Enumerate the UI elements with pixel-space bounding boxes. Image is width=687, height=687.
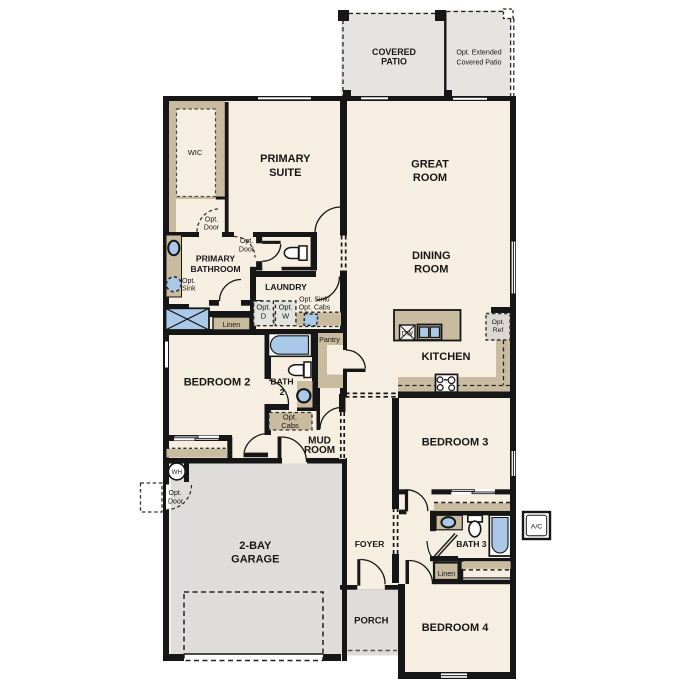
- svg-text:BATHROOM: BATHROOM: [191, 264, 241, 274]
- svg-text:KITCHEN: KITCHEN: [422, 351, 471, 363]
- svg-text:LAUNDRY: LAUNDRY: [265, 282, 307, 292]
- svg-text:BATH 3: BATH 3: [456, 539, 487, 549]
- svg-text:WIC: WIC: [188, 148, 203, 157]
- svg-text:FOYER: FOYER: [355, 539, 385, 549]
- svg-text:BEDROOM 4: BEDROOM 4: [422, 622, 490, 634]
- svg-text:Opt.: Opt.: [169, 490, 182, 497]
- svg-text:Pantry: Pantry: [319, 335, 340, 344]
- svg-text:Covered Patio: Covered Patio: [457, 59, 502, 67]
- svg-text:Door: Door: [168, 499, 184, 506]
- svg-text:2-BAY: 2-BAY: [239, 540, 272, 552]
- svg-text:Ref: Ref: [493, 327, 504, 334]
- svg-text:GARAGE: GARAGE: [231, 554, 279, 566]
- svg-text:Sink: Sink: [182, 286, 196, 293]
- svg-text:Opt. Sink/: Opt. Sink/: [299, 297, 330, 304]
- svg-text:W: W: [282, 312, 290, 321]
- svg-text:Opt.: Opt.: [182, 278, 195, 285]
- svg-text:BATH: BATH: [270, 377, 293, 387]
- svg-text:Linen: Linen: [438, 569, 456, 578]
- svg-text:Opt. Cabs: Opt. Cabs: [299, 305, 331, 312]
- svg-text:PRIMARY: PRIMARY: [196, 254, 236, 264]
- svg-text:DINING: DINING: [412, 250, 451, 262]
- svg-text:Cabs: Cabs: [281, 421, 299, 430]
- svg-text:COVERED: COVERED: [372, 47, 416, 57]
- svg-text:Opt.: Opt.: [492, 319, 505, 326]
- svg-text:2: 2: [280, 387, 285, 397]
- svg-text:A/C: A/C: [531, 524, 542, 531]
- svg-text:Opt.: Opt.: [279, 303, 293, 312]
- svg-text:PRIMARY: PRIMARY: [260, 153, 311, 165]
- svg-text:Opt.: Opt.: [205, 217, 218, 224]
- svg-text:BEDROOM 3: BEDROOM 3: [422, 437, 489, 449]
- svg-text:DW: DW: [402, 331, 414, 338]
- svg-text:ROOM: ROOM: [413, 172, 447, 184]
- svg-text:D: D: [261, 312, 267, 321]
- svg-text:Linen: Linen: [223, 320, 241, 329]
- svg-text:Door: Door: [239, 247, 255, 254]
- svg-text:Opt.: Opt.: [256, 303, 270, 312]
- svg-text:BEDROOM 2: BEDROOM 2: [184, 377, 251, 389]
- svg-text:ROOM: ROOM: [414, 264, 448, 276]
- svg-text:SUITE: SUITE: [269, 167, 301, 179]
- svg-text:Opt. Extended: Opt. Extended: [456, 49, 501, 57]
- svg-text:ROOM: ROOM: [304, 445, 335, 456]
- svg-text:PATIO: PATIO: [381, 57, 407, 67]
- svg-text:WH: WH: [172, 469, 182, 476]
- svg-text:PORCH: PORCH: [354, 615, 388, 626]
- svg-text:Opt.: Opt.: [240, 238, 253, 245]
- svg-text:Door: Door: [204, 225, 220, 232]
- svg-text:GREAT: GREAT: [411, 159, 449, 171]
